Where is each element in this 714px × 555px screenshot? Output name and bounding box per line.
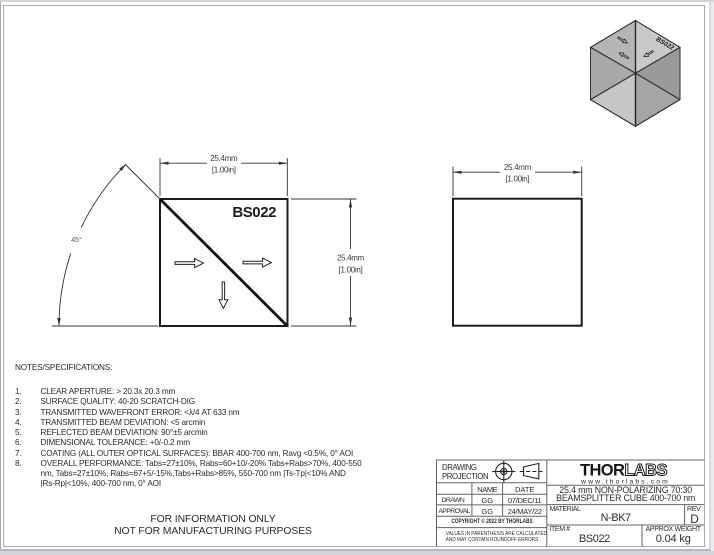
svg-text:THORLABS: THORLABS — [580, 462, 667, 480]
